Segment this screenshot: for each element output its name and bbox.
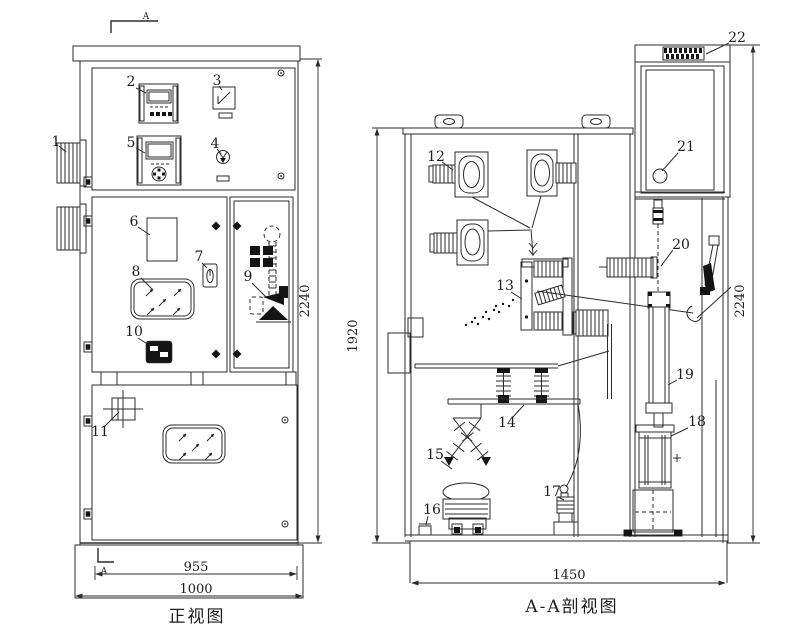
meter: [213, 87, 235, 118]
branch-bushings: [429, 150, 576, 265]
switch-knob: [217, 151, 230, 182]
part-label-9: 9: [244, 269, 253, 285]
part-label-6: 6: [130, 214, 139, 230]
door-button: [653, 169, 667, 183]
front-view-caption: 正视图: [169, 607, 226, 627]
dim-front-height: 2240: [298, 284, 313, 317]
instrument-panel: [137, 84, 235, 185]
control-relay: [137, 136, 181, 185]
part-label-13: 13: [496, 278, 514, 294]
inspection-window: [131, 279, 194, 319]
part-label-12: 12: [427, 149, 445, 165]
side-bushings: [57, 140, 86, 253]
dim-overall-width: 1000: [179, 582, 212, 597]
interlock-mechanism: [250, 226, 291, 322]
section-letter-top: A: [142, 12, 150, 22]
part-label-20: 20: [672, 237, 690, 253]
low-voltage-compartment: [635, 45, 730, 199]
section-letter-bottom: A: [100, 567, 108, 577]
dim-inner-height: 1920: [346, 319, 361, 352]
part-label-1: 1: [52, 134, 61, 150]
surge-arrester: [554, 404, 580, 535]
earthing-bracket: [419, 524, 431, 535]
support-insulators: [448, 368, 580, 404]
part-label-3: 3: [213, 73, 222, 89]
front-view: A A 2240 955 1000 正视图 1 2 3 4 5 6 7 8 9 …: [52, 12, 322, 627]
part-label-19: 19: [676, 367, 694, 383]
insulating-cylinder: [646, 307, 672, 427]
part-label-5: 5: [127, 135, 136, 151]
mechanism-box: [624, 425, 682, 536]
section-view-caption: A-A剖视图: [524, 597, 618, 617]
part-label-22: 22: [728, 30, 746, 46]
hinge: [84, 509, 92, 519]
lifting-lug: [435, 115, 463, 128]
nameplate-frame: [147, 218, 177, 261]
inspection-window: [163, 425, 225, 463]
dim-door-width: 955: [184, 560, 209, 575]
lifting-lug: [582, 115, 610, 128]
section-view: 1920 2240 1450 A-A剖视图 12 13 14 15 16 17 …: [346, 30, 760, 617]
drawing-canvas: A A 2240 955 1000 正视图 1 2 3 4 5 6 7 8 9 …: [0, 0, 787, 627]
dim-section-width: 1450: [552, 568, 585, 583]
part-label-14: 14: [498, 415, 516, 431]
part-label-15: 15: [426, 447, 444, 463]
front-dimensions: 2240 955 1000 正视图: [76, 59, 322, 627]
screw-icon: [278, 70, 284, 76]
wall-bushing: [573, 310, 608, 336]
panel-bolt-icon: [212, 350, 221, 359]
switchgear-engineering-drawing: A A 2240 955 1000 正视图 1 2 3 4 5 6 7 8 9 …: [0, 0, 787, 627]
part-label-8: 8: [132, 264, 141, 280]
warning-plate: [146, 341, 172, 363]
racking-dots: [465, 299, 514, 326]
lower-door: [103, 390, 225, 463]
part-label-4: 4: [211, 136, 220, 152]
dim-section-height: 2240: [733, 284, 748, 317]
operating-rod: [648, 200, 670, 308]
part-label-10: 10: [125, 324, 143, 340]
screw-icon: [282, 417, 288, 423]
panel-bolt-icon: [212, 222, 221, 231]
part-label-17: 17: [543, 484, 561, 500]
part-label-11: 11: [91, 424, 109, 440]
protection-relay: [139, 84, 178, 123]
part-label-16: 16: [423, 502, 441, 518]
part-label-18: 18: [688, 414, 706, 430]
right-insulator: [599, 257, 657, 278]
hinge: [84, 216, 92, 226]
screw-icon: [278, 173, 284, 179]
part-label-2: 2: [127, 74, 136, 90]
door-handle: [203, 264, 217, 287]
screw-icon: [282, 521, 288, 527]
hinge: [84, 342, 92, 352]
part-label-21: 21: [677, 139, 695, 155]
part-label-7: 7: [195, 249, 204, 265]
vent-grille-slats: [664, 48, 702, 59]
voltage-transformer: [443, 404, 491, 534]
